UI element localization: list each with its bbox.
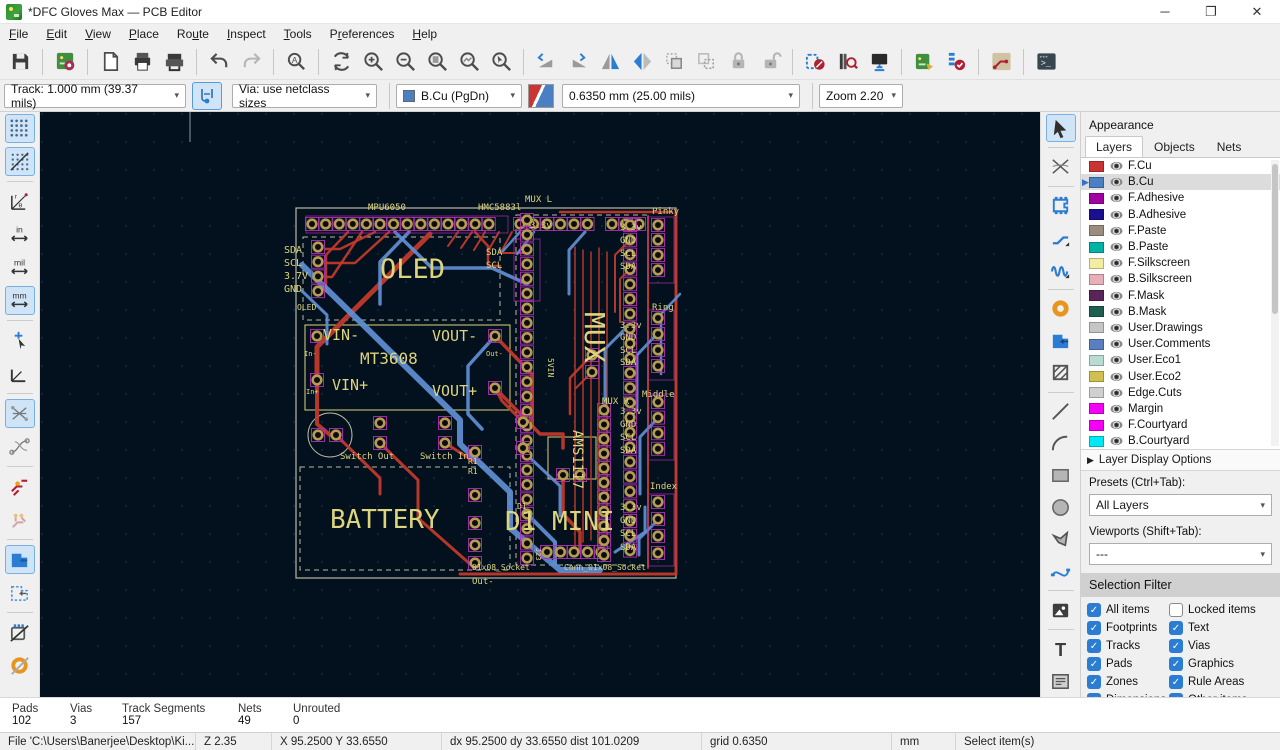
checkbox[interactable]: ✓ (1087, 621, 1101, 635)
layer-color-swatch[interactable] (1089, 355, 1104, 366)
svg-text:T: T (1055, 640, 1066, 660)
silkscreen-label: OLED (297, 303, 316, 312)
svg-text:r: r (15, 194, 18, 201)
toolbar-separator (978, 49, 979, 75)
checkbox[interactable] (1169, 603, 1183, 617)
toolbar-separator (7, 612, 33, 613)
chevron-down-icon: ▾ (357, 90, 370, 101)
toolbar-separator (318, 49, 319, 75)
rotate-ccw-icon (535, 50, 558, 73)
layer-row-b-paste[interactable]: B.Paste (1081, 239, 1280, 255)
board-setup-button[interactable] (50, 47, 80, 77)
layer-name: B.Silkscreen (1128, 273, 1192, 285)
stat-label: Vias (70, 703, 122, 715)
visibility-eye-icon[interactable] (1110, 323, 1123, 333)
selection-filter-title: Selection Filter (1081, 573, 1280, 597)
silkscreen-label: GND (620, 236, 636, 246)
stat-nets: Nets49 (238, 698, 293, 732)
zoom-in-button[interactable] (358, 47, 388, 77)
presets-label: Presets (Ctrl+Tab): (1081, 471, 1280, 491)
print-icon (131, 50, 154, 73)
checkbox[interactable]: ✓ (1087, 603, 1101, 617)
layer-row-user-eco1[interactable]: User.Eco1 (1081, 352, 1280, 368)
silkscreen-label: SDA (620, 262, 637, 272)
mirror-button[interactable] (627, 47, 657, 77)
layer-row-f-paste[interactable]: F.Paste (1081, 223, 1280, 239)
layer-name: B.Paste (1128, 241, 1168, 253)
zone-outline-button[interactable] (5, 578, 35, 607)
ratsnest-button[interactable] (5, 399, 35, 428)
layer-row-b-courtyard[interactable]: B.Courtyard (1081, 433, 1280, 449)
visibility-eye-icon[interactable] (1110, 372, 1123, 382)
minimize-button[interactable]: ─ (1142, 0, 1188, 24)
silkscreen-label: GND (620, 516, 636, 526)
menu-place[interactable]: Place (120, 25, 168, 43)
draw-arc-icon (1049, 432, 1072, 455)
route-tracks-button[interactable] (1046, 224, 1076, 252)
scrollbar-thumb[interactable] (1272, 164, 1278, 314)
toolbar-separator (42, 49, 43, 75)
silkscreen-label: J23 (534, 548, 542, 561)
rotate-ccw-button[interactable] (531, 47, 561, 77)
visibility-eye-icon[interactable] (1110, 161, 1123, 171)
visibility-eye-icon[interactable] (1110, 420, 1123, 430)
layer-color-swatch[interactable] (1089, 420, 1104, 431)
toolbar-separator (1048, 590, 1074, 591)
drc-button[interactable] (941, 47, 971, 77)
layer-color-swatch[interactable] (1089, 161, 1104, 172)
stat-track-segments: Track Segments157 (122, 698, 238, 732)
menu-view[interactable]: View (76, 25, 120, 43)
page-settings-button[interactable] (95, 47, 125, 77)
draw-bezier-icon (1049, 560, 1072, 583)
zoom-objects-button[interactable] (454, 47, 484, 77)
tab-layers[interactable]: Layers (1085, 136, 1143, 157)
title-bar: *DFC Gloves Max — PCB Editor ─ ❐ ✕ (0, 0, 1280, 24)
silkscreen-label: MPU6050 (368, 203, 406, 213)
tune-length-button[interactable] (1046, 256, 1076, 284)
checkbox[interactable]: ✓ (1169, 621, 1183, 635)
silkscreen-label: SCL (620, 433, 636, 443)
filter-rule-areas[interactable]: ✓Rule Areas (1169, 675, 1279, 689)
update-pcb-button[interactable] (909, 47, 939, 77)
zoom-select[interactable]: Zoom 2.20▾ (819, 84, 903, 108)
drawing-toolbar: Track: 1.000 mm (39.37 mils)▾ Via: use n… (0, 80, 1280, 112)
appearance-title: Appearance (1081, 112, 1280, 136)
draw-arc-button[interactable] (1046, 430, 1076, 458)
selection-filter: ✓All itemsLocked items✓Footprints✓Text✓T… (1081, 597, 1280, 707)
layer-name: F.Silkscreen (1128, 257, 1190, 269)
curved-ratsnest-button[interactable] (5, 432, 35, 461)
undo-button[interactable] (204, 47, 234, 77)
draw-polygon-icon (1049, 528, 1072, 551)
draw-zone-button[interactable] (1046, 327, 1076, 355)
chevron-down-icon: ▾ (883, 90, 896, 101)
filter-tracks[interactable]: ✓Tracks (1087, 639, 1169, 653)
checkbox[interactable]: ✓ (1087, 639, 1101, 653)
visibility-eye-icon[interactable] (1110, 291, 1123, 301)
viewports-value: --- (1096, 547, 1108, 561)
zoom-out-button[interactable] (390, 47, 420, 77)
layer-row-b-silkscreen[interactable]: B.Silkscreen (1081, 271, 1280, 287)
print-button[interactable] (127, 47, 157, 77)
drc-icon (945, 50, 968, 73)
net-highlight-icon (8, 475, 31, 498)
layer-color-swatch[interactable] (1089, 436, 1104, 447)
pad-hide-icon (8, 654, 31, 677)
visibility-eye-icon[interactable] (1110, 436, 1123, 446)
layer-row-f-silkscreen[interactable]: F.Silkscreen (1081, 255, 1280, 271)
filter-zones[interactable]: ✓Zones (1087, 675, 1169, 689)
layer-row-user-eco2[interactable]: User.Eco2 (1081, 368, 1280, 384)
zone-outline-icon (8, 581, 31, 604)
layer-row-f-courtyard[interactable]: F.Courtyard (1081, 417, 1280, 433)
layer-row-b-mask[interactable]: B.Mask (1081, 304, 1280, 320)
silkscreen-label: VIN- (323, 326, 359, 344)
curved-ratsnest-icon (8, 435, 31, 458)
layer-row-b-adhesive[interactable]: B.Adhesive (1081, 207, 1280, 223)
route-style-button[interactable] (986, 47, 1016, 77)
stat-label: Pads (12, 703, 70, 715)
board-stats-bar: Pads102Vias3Track Segments157Nets49Unrou… (0, 697, 1280, 732)
layer-color-swatch[interactable] (1089, 177, 1104, 188)
stat-label: Track Segments (122, 703, 238, 715)
tab-nets[interactable]: Nets (1206, 136, 1253, 157)
filter-all-items[interactable]: ✓All items (1087, 603, 1169, 617)
svg-text:θ: θ (19, 202, 23, 209)
rule-area-button[interactable] (1046, 359, 1076, 387)
place-image-icon (1049, 599, 1072, 622)
visibility-eye-icon[interactable] (1110, 242, 1123, 252)
stat-vias: Vias3 (70, 698, 122, 732)
layer-name: B.Cu (1128, 176, 1154, 188)
ungroup-icon (695, 50, 718, 73)
track-width-select[interactable]: Track: 1.000 mm (39.37 mils)▾ (4, 84, 186, 108)
menu-edit[interactable]: Edit (37, 25, 76, 43)
zone-fill-button[interactable] (5, 545, 35, 574)
layer-display-options[interactable]: ▶ Layer Display Options (1081, 450, 1280, 471)
refresh-icon (330, 50, 353, 73)
layer-color-swatch[interactable] (1089, 371, 1104, 382)
free-angle-button[interactable] (5, 359, 35, 388)
units-mils-icon: mil (8, 256, 31, 279)
layer-display-options-label: Layer Display Options (1099, 454, 1212, 466)
silkscreen-label: 3.3v (530, 221, 552, 231)
silkscreen-label: SDA (486, 248, 503, 258)
route-tracks-icon (1049, 226, 1072, 249)
filter-label: Tracks (1106, 640, 1140, 652)
draw-zone-icon (1049, 329, 1072, 352)
pcb-board-svg: MPU6050HMC5883lMUX LPinkyOLEDSDASCL3.7VG… (40, 112, 1040, 697)
status-grid: grid 0.6350 (702, 733, 892, 750)
layer-name: User.Drawings (1128, 322, 1203, 334)
layer-row-f-mask[interactable]: F.Mask (1081, 288, 1280, 304)
layer-row-margin[interactable]: Margin (1081, 401, 1280, 417)
visibility-eye-icon[interactable] (1110, 210, 1123, 220)
zoom-select-value: Zoom 2.20 (826, 89, 883, 103)
viewports-select[interactable]: ---▾ (1089, 543, 1272, 565)
silkscreen-label: MT3608 (360, 349, 418, 368)
checkbox[interactable]: ✓ (1087, 657, 1101, 671)
draw-bezier-button[interactable] (1046, 557, 1076, 585)
group-button[interactable] (659, 47, 689, 77)
layer-name: User.Comments (1128, 338, 1210, 350)
silkscreen-label: Conn_01x08_Socket (564, 563, 646, 572)
silkscreen-label: 5VIN (546, 358, 555, 377)
toolbar-separator (1048, 147, 1074, 148)
visibility-eye-icon[interactable] (1110, 355, 1123, 365)
silkscreen-label: R1 (468, 467, 478, 476)
local-ratsnest-button[interactable] (1046, 153, 1076, 181)
restore-button[interactable]: ❐ (1188, 0, 1234, 24)
layer-name: B.Mask (1128, 306, 1166, 318)
silkscreen-label: VOUT- (432, 327, 477, 345)
lock-icon (727, 50, 750, 73)
rotate-cw-button[interactable] (563, 47, 593, 77)
lock-button[interactable] (723, 47, 753, 77)
selected-layer-arrow: ▶ (1082, 177, 1089, 188)
checkbox[interactable]: ✓ (1087, 675, 1101, 689)
menu-file[interactable]: File (0, 25, 37, 43)
layer-name: F.Adhesive (1128, 192, 1184, 204)
silkscreen-label: SDA (620, 358, 637, 368)
update-pcb-icon (913, 50, 936, 73)
unlock-button[interactable] (755, 47, 785, 77)
local-ratsnest-icon (1049, 155, 1072, 178)
silkscreen-label: 3.3v (620, 223, 642, 233)
layer-color-swatch[interactable] (1089, 193, 1104, 204)
footprint-browser-button[interactable] (832, 47, 862, 77)
toolbar-separator (7, 466, 33, 467)
silkscreen-label: MUX L (525, 195, 552, 205)
silkscreen-label: Pinky (652, 207, 680, 217)
visibility-eye-icon[interactable] (1110, 274, 1123, 284)
filter-label: Zones (1106, 676, 1138, 688)
toolbar-separator (7, 539, 33, 540)
menu-bar: FileEditViewPlaceRouteInspectToolsPrefer… (0, 24, 1280, 44)
tune-length-icon (1049, 258, 1072, 281)
ungroup-button[interactable] (691, 47, 721, 77)
tab-objects[interactable]: Objects (1143, 136, 1206, 157)
flip-horizontal-button[interactable] (595, 47, 625, 77)
visibility-eye-icon[interactable] (1110, 307, 1123, 317)
place-footprint-button[interactable] (1046, 192, 1076, 220)
status-file: File 'C:\Users\Banerjee\Desktop\Ki... (0, 733, 196, 750)
layer-color-swatch[interactable] (1089, 306, 1104, 317)
track-width-icon (197, 86, 217, 106)
status-delta: dx 95.2500 dy 33.6550 dist 101.0209 (442, 733, 702, 750)
place-text-icon: T (1049, 638, 1072, 661)
menu-route[interactable]: Route (168, 25, 218, 43)
track-display-icon (8, 508, 31, 531)
layer-name: F.Mask (1128, 290, 1164, 302)
layer-row-edge-cuts[interactable]: Edge.Cuts (1081, 385, 1280, 401)
presets-select[interactable]: All Layers▾ (1089, 494, 1272, 516)
grid-select[interactable]: 0.6350 mm (25.00 mils)▾ (562, 84, 800, 108)
visibility-eye-icon[interactable] (1110, 388, 1123, 398)
redo-button[interactable] (236, 47, 266, 77)
layer-pair-icon[interactable] (528, 84, 554, 108)
zoom-fit-icon (426, 50, 449, 73)
visibility-eye-icon[interactable] (1110, 404, 1123, 414)
menu-preferences[interactable]: Preferences (321, 25, 404, 43)
unlock-icon (759, 50, 782, 73)
track-width-value: Track: 1.000 mm (39.37 mils) (11, 82, 166, 110)
rotate-cw-icon (567, 50, 590, 73)
find-button[interactable]: A (281, 47, 311, 77)
pad-hide-button[interactable] (5, 651, 35, 680)
layer-color-swatch[interactable] (1089, 225, 1104, 236)
units-mm-icon: mm (8, 289, 31, 312)
filter-footprints[interactable]: ✓Footprints (1087, 621, 1169, 635)
grid-button[interactable] (5, 114, 35, 143)
place-textbox-button[interactable] (1046, 667, 1076, 695)
layer-name: Margin (1128, 403, 1163, 415)
visibility-eye-icon[interactable] (1110, 258, 1123, 268)
silkscreen-label: Switch Out (340, 452, 394, 462)
track-display-button[interactable] (5, 505, 35, 534)
right-toolbar: T (1040, 112, 1080, 697)
status-zoom: Z 2.35 (196, 733, 272, 750)
layer-row-user-comments[interactable]: User.Comments (1081, 336, 1280, 352)
select-button[interactable] (1046, 114, 1076, 142)
draw-circle-button[interactable] (1046, 493, 1076, 521)
polar-coords-button[interactable]: θr (5, 187, 35, 216)
filter-graphics[interactable]: ✓Graphics (1169, 657, 1279, 671)
units-mm-button[interactable]: mm (5, 286, 35, 315)
silkscreen-label: VOUT+ (432, 382, 477, 400)
zoom-out-icon (394, 50, 417, 73)
silkscreen-label: SDA (620, 543, 637, 553)
menu-inspect[interactable]: Inspect (218, 25, 275, 43)
silkscreen-label: In+ (306, 388, 319, 396)
place-image-button[interactable] (1046, 596, 1076, 624)
draw-polygon-button[interactable] (1046, 525, 1076, 553)
filter-label: Pads (1106, 658, 1132, 670)
layers-scrollbar[interactable] (1271, 160, 1279, 446)
3d-viewer-icon (868, 50, 891, 73)
layer-color-swatch[interactable] (1089, 258, 1104, 269)
close-button[interactable]: ✕ (1234, 0, 1280, 24)
toolbar-separator (7, 320, 33, 321)
svg-text:A: A (291, 55, 297, 65)
checkbox[interactable]: ✓ (1169, 657, 1183, 671)
filter-vias[interactable]: ✓Vias (1169, 639, 1279, 653)
plot-button[interactable] (159, 47, 189, 77)
layer-row-f-adhesive[interactable]: F.Adhesive (1081, 190, 1280, 206)
place-text-button[interactable]: T (1046, 635, 1076, 663)
footprint-hide-button[interactable] (5, 618, 35, 647)
zoom-fit-button[interactable] (422, 47, 452, 77)
visibility-eye-icon[interactable] (1110, 339, 1123, 349)
layer-color-swatch[interactable] (1089, 403, 1104, 414)
silkscreen-label: SCL (620, 529, 636, 539)
layer-color-swatch[interactable] (1089, 209, 1104, 220)
draw-rect-button[interactable] (1046, 461, 1076, 489)
layer-name: User.Eco2 (1128, 371, 1181, 383)
zoom-selection-button[interactable] (486, 47, 516, 77)
silkscreen-label: GND (620, 333, 636, 343)
draw-rect-icon (1049, 464, 1072, 487)
visibility-eye-icon[interactable] (1110, 226, 1123, 236)
units-inches-button[interactable]: in (5, 220, 35, 249)
pcb-editor-window: *DFC Gloves Max — PCB Editor ─ ❐ ✕ FileE… (0, 0, 1280, 750)
layer-row-user-drawings[interactable]: User.Drawings (1081, 320, 1280, 336)
polar-coords-icon: θr (8, 190, 31, 213)
refresh-button[interactable] (326, 47, 356, 77)
layer-color-swatch[interactable] (1089, 242, 1104, 253)
place-via-icon (1049, 297, 1072, 320)
toolbar-separator (87, 49, 88, 75)
pcb-canvas[interactable]: MPU6050HMC5883lMUX LPinkyOLEDSDASCL3.7VG… (40, 112, 1040, 697)
silkscreen-label: GND (284, 284, 302, 295)
auto-track-width-button[interactable] (192, 82, 222, 110)
visibility-eye-icon[interactable] (1110, 177, 1123, 187)
silkscreen-label: 3.3v (620, 407, 642, 417)
save-button[interactable] (5, 47, 35, 77)
visibility-eye-icon[interactable] (1110, 193, 1123, 203)
layer-color-swatch[interactable] (1089, 290, 1104, 301)
footprint-editor-button[interactable] (800, 47, 830, 77)
menu-tools[interactable]: Tools (275, 25, 321, 43)
toolbar-separator (7, 181, 33, 182)
checkbox[interactable]: ✓ (1169, 675, 1183, 689)
layer-color-swatch[interactable] (1089, 274, 1104, 285)
filter-locked-items[interactable]: Locked items (1169, 603, 1279, 617)
filter-label: Footprints (1106, 622, 1157, 634)
layer-name: B.Courtyard (1128, 435, 1189, 447)
units-mils-button[interactable]: mil (5, 253, 35, 282)
place-textbox-icon (1049, 670, 1072, 693)
filter-label: Graphics (1188, 658, 1234, 670)
layer-row-b-cu[interactable]: ▶B.Cu (1081, 174, 1280, 190)
status-action: Select item(s) (956, 733, 1280, 750)
3d-viewer-button[interactable] (864, 47, 894, 77)
toolbar-separator (523, 49, 524, 75)
presets-value: All Layers (1096, 498, 1149, 512)
place-via-button[interactable] (1046, 295, 1076, 323)
silkscreen-label: 3.7V (284, 271, 308, 282)
draw-line-button[interactable] (1046, 398, 1076, 426)
layer-color-swatch[interactable] (1089, 339, 1104, 350)
silkscreen-label: R1 (468, 457, 478, 466)
menu-help[interactable]: Help (403, 25, 446, 43)
toolbar-separator (196, 49, 197, 75)
stat-value: 0 (293, 715, 413, 727)
layer-row-f-cu[interactable]: F.Cu (1081, 158, 1280, 174)
zone-fill-icon (8, 548, 31, 571)
via-size-select[interactable]: Via: use netclass sizes▾ (232, 84, 377, 108)
draw-circle-icon (1049, 496, 1072, 519)
filter-pads[interactable]: ✓Pads (1087, 657, 1169, 671)
viewports-label: Viewports (Shift+Tab): (1081, 520, 1280, 540)
cursor-shape-button[interactable] (5, 326, 35, 355)
layer-select[interactable]: B.Cu (PgDn)▾ (396, 84, 522, 108)
layer-color-swatch[interactable] (1089, 322, 1104, 333)
net-highlight-button[interactable] (5, 472, 35, 501)
undo-icon (208, 50, 231, 73)
grid-overrides-button[interactable] (5, 147, 35, 176)
scripting-console-button[interactable]: >_ (1031, 47, 1061, 77)
filter-text[interactable]: ✓Text (1169, 621, 1279, 635)
layer-color-swatch[interactable] (1089, 387, 1104, 398)
zoom-selection-icon (490, 50, 513, 73)
toolbar-separator (1048, 629, 1074, 630)
checkbox[interactable]: ✓ (1169, 639, 1183, 653)
filter-label: Text (1188, 622, 1209, 634)
chevron-down-icon: ▾ (780, 90, 793, 101)
free-angle-icon (8, 362, 31, 385)
